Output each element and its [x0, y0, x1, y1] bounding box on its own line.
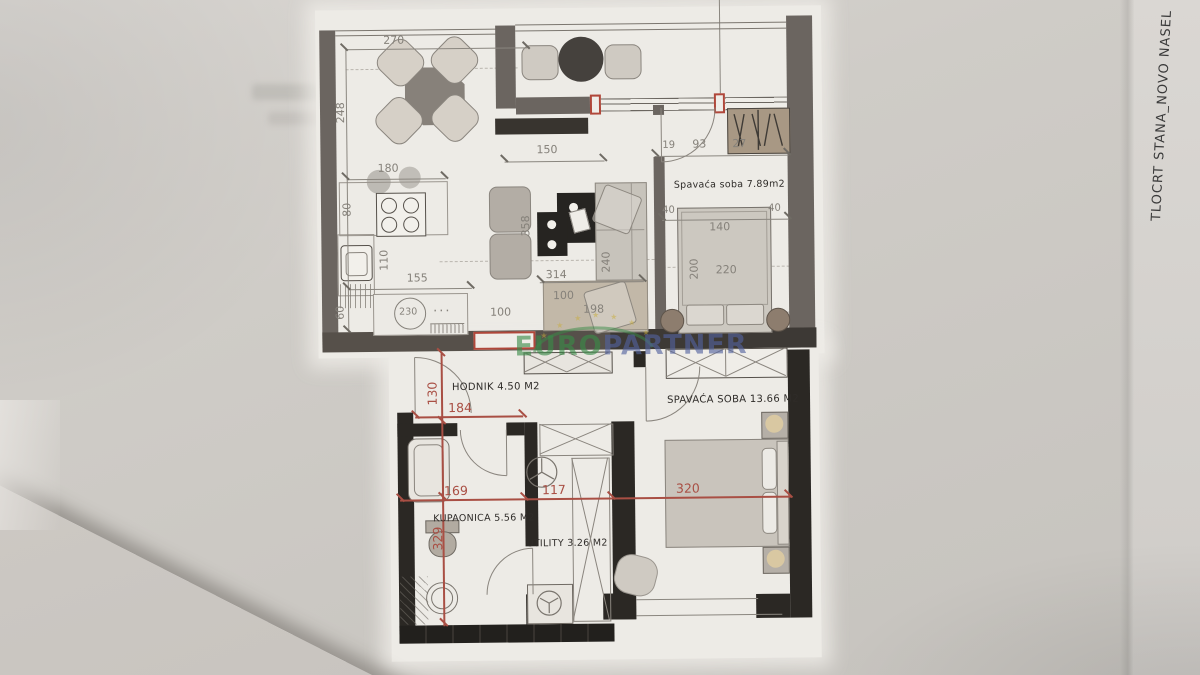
dim-329: 329 [432, 527, 445, 551]
fan-spokes [530, 458, 554, 479]
dim-100-kitchen: 100 [490, 307, 511, 318]
washer-spokes [540, 598, 558, 613]
dim-155: 155 [407, 272, 428, 283]
utility-cabinet-x [539, 423, 611, 454]
dim-80: 80 [341, 203, 352, 217]
dim-150: 150 [536, 144, 557, 155]
dim-248: 248 [335, 102, 346, 123]
dim-117: 117 [542, 484, 566, 497]
dim-60: 60 [335, 306, 346, 320]
dim-40-left: 40 [662, 206, 675, 216]
counter-dots: ... [433, 301, 452, 314]
dim-93: 93 [692, 138, 706, 149]
dim-270: 270 [383, 35, 404, 46]
dim-320: 320 [676, 483, 700, 496]
door-arc-bathroom [460, 430, 506, 476]
room-label-bathroom: KUPAONICA 5.56 M2 [433, 513, 535, 524]
door-arc-small-bedroom [661, 107, 716, 162]
dim-230: 230 [399, 307, 417, 317]
dim-100-sofa: 100 [553, 290, 574, 301]
svg-text:★: ★ [592, 311, 599, 320]
watermark-partner: PARTNER [602, 329, 747, 362]
room-label-utility: UTILITY 3.26 M2 [527, 539, 608, 549]
dim-140: 140 [709, 221, 730, 232]
dim-130: 130 [427, 382, 440, 406]
svg-text:★: ★ [628, 318, 635, 327]
dim-314: 314 [546, 269, 567, 280]
dim-169: 169 [444, 485, 468, 498]
dim-180: 180 [378, 163, 399, 174]
dim-184: 184 [448, 402, 472, 415]
dim-27: 27 [732, 138, 746, 149]
svg-text:★: ★ [574, 314, 581, 323]
door-arc-utility [487, 548, 533, 594]
dim-40-right: 40 [768, 204, 781, 214]
room-label-hallway: HODNIK 4.50 M2 [452, 382, 540, 393]
room-label-large-bedroom: SPAVAĆA SOBA 13.66 M2 [667, 395, 799, 406]
watermark-euro: EURO [514, 331, 602, 363]
dim-110: 110 [378, 250, 389, 271]
dim-200: 200 [689, 259, 700, 280]
watermark-text: EUROPARTNER [514, 329, 747, 362]
floor-plan-drawing: 270 248 150 180 80 110 155 60 100 230 ..… [0, 0, 1200, 675]
svg-text:★: ★ [556, 321, 563, 330]
dim-19: 19 [662, 141, 675, 151]
underlying-sheet-highlight [0, 400, 60, 530]
dim-240: 240 [600, 251, 611, 272]
svg-text:★: ★ [610, 312, 617, 321]
dim-220: 220 [716, 264, 737, 275]
room-label-small-bedroom: Spavaća soba 7.89m2 [674, 180, 785, 191]
photographed-floor-plan: TLOCRT STANA_NOVO NASEL [0, 0, 1200, 675]
dim-358: 358 [520, 215, 531, 236]
